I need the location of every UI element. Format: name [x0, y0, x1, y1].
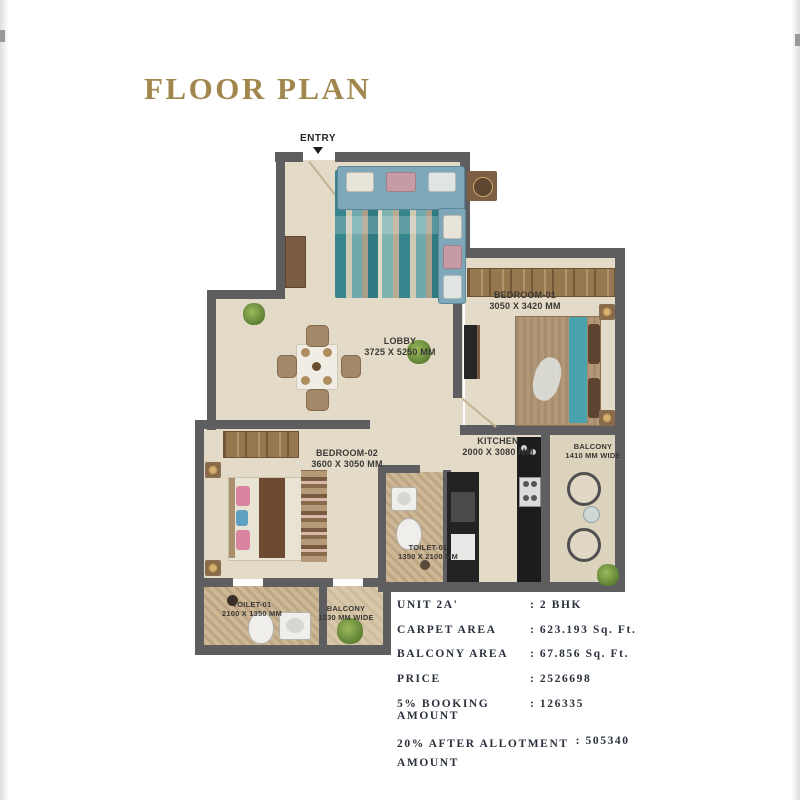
- side-table-top: [473, 177, 493, 197]
- detail-row: CARPET AREA : 623.193 Sq. Ft.: [397, 624, 652, 637]
- dining-table: [296, 344, 338, 390]
- bed-pillow: [236, 530, 250, 550]
- stove: [519, 477, 541, 507]
- console-table: [285, 236, 306, 288]
- balcony-table: [583, 506, 600, 523]
- detail-row: BALCONY AREA : 67.856 Sq. Ft.: [397, 648, 652, 661]
- room-name: LOBBY: [384, 336, 417, 346]
- place-setting: [301, 376, 310, 385]
- sofa-pillow: [346, 172, 374, 192]
- plant-icon: [243, 303, 265, 325]
- detail-value: : 623.193 Sq. Ft.: [530, 624, 652, 637]
- room-label-bedroom1: BEDROOM-01 3050 X 3420 MM: [489, 290, 560, 313]
- wall-segment: [276, 152, 285, 299]
- detail-value: : 67.856 Sq. Ft.: [530, 648, 652, 661]
- room-label-balcony-right: BALCONY 1410 MM WIDE: [565, 442, 620, 461]
- burner: [523, 495, 529, 501]
- burner: [531, 495, 537, 501]
- sofa-pillow: [386, 172, 416, 192]
- bed: [228, 477, 310, 561]
- room-label-lobby: LOBBY 3725 X 5250 MM: [364, 336, 435, 359]
- wall-segment: [195, 420, 370, 429]
- detail-value: : 505340: [576, 735, 652, 748]
- detail-label: CARPET AREA: [397, 624, 530, 637]
- detail-label: 5% BOOKING AMOUNT: [397, 698, 530, 723]
- bedside-rug: [301, 470, 327, 562]
- place-setting: [323, 348, 332, 357]
- room-dim: 3725 X 5250 MM: [364, 347, 435, 357]
- wall-segment: [460, 425, 625, 435]
- kitchen-counter: [517, 437, 541, 582]
- bed-runner: [259, 478, 285, 558]
- room-name: BALCONY: [574, 442, 612, 451]
- room-dim: 1230 MM WIDE: [318, 613, 373, 622]
- bed-throw: [529, 354, 566, 403]
- sofa: [438, 208, 466, 304]
- scan-mark: [795, 34, 800, 46]
- dining-chair: [277, 355, 297, 378]
- bed-pillow: [236, 486, 250, 506]
- wall-segment: [195, 645, 391, 655]
- entry-label: ENTRY: [300, 134, 336, 144]
- detail-row: UNIT 2A' : 2 BHK: [397, 599, 652, 612]
- room-dim: 3600 X 3050 MM: [311, 459, 382, 469]
- plant-icon: [597, 564, 619, 586]
- room-name: TOILET-01: [233, 600, 272, 609]
- bed: [515, 316, 601, 426]
- wall-segment: [541, 427, 550, 592]
- balcony-chair: [567, 528, 601, 562]
- bed-runner: [569, 317, 587, 423]
- kitchen-appliance-column: [447, 472, 479, 582]
- room-label-bedroom2: BEDROOM-02 3600 X 3050 MM: [311, 448, 382, 471]
- wall-segment: [207, 290, 279, 299]
- room-dim: 2100 X 1350 MM: [222, 609, 282, 618]
- dining-chair: [341, 355, 361, 378]
- room-name: BEDROOM-02: [316, 448, 378, 458]
- detail-label: UNIT 2A': [397, 599, 530, 612]
- floor-plan: ENTRY: [195, 140, 640, 660]
- dining-chair: [306, 389, 329, 411]
- page-edge-shadow-right: [791, 0, 800, 800]
- room-name: BEDROOM-01: [494, 290, 556, 300]
- room-label-kitchen: KITCHEN 2000 X 3080 MM: [462, 436, 533, 459]
- dining-chair: [306, 325, 329, 347]
- wall-segment: [383, 587, 391, 655]
- room-dim: 1350 X 2100 MM: [398, 552, 458, 561]
- sofa-pillow: [443, 245, 462, 269]
- wall-segment: [378, 582, 553, 592]
- appliance: [451, 492, 475, 522]
- detail-value: : 2 BHK: [530, 599, 652, 612]
- wall-segment: [615, 248, 625, 590]
- wall-segment: [460, 248, 625, 258]
- bed-pillow: [236, 510, 248, 526]
- unit-details-table: UNIT 2A' : 2 BHK CARPET AREA : 623.193 S…: [397, 599, 652, 786]
- sink-basin: [397, 492, 411, 505]
- room-label-toilet-bottom: TOILET-01 2100 X 1350 MM: [222, 600, 282, 619]
- centerpiece: [312, 362, 321, 371]
- wall-segment: [378, 465, 420, 473]
- nightstand-lamp: [599, 304, 615, 320]
- burner: [523, 481, 529, 487]
- sofa: [337, 166, 465, 210]
- room-dim: 3050 X 3420 MM: [489, 301, 560, 311]
- room-label-balcony-bottom: BALCONY 1230 MM WIDE: [318, 604, 373, 623]
- wall-segment: [195, 420, 204, 655]
- detail-row: 5% BOOKING AMOUNT : 126335: [397, 698, 652, 723]
- room-name: BALCONY: [327, 604, 365, 613]
- sofa-pillow: [428, 172, 456, 192]
- side-table: [467, 171, 497, 201]
- bed-headboard: [229, 478, 235, 558]
- wardrobe: [223, 431, 299, 458]
- wall-segment: [207, 290, 216, 430]
- room-name: KITCHEN: [477, 436, 518, 446]
- detail-value: : 2526698: [530, 673, 652, 686]
- wall-segment: [195, 578, 233, 587]
- room-label-toilet-mid: TOILET-01 1350 X 2100 MM: [398, 543, 458, 562]
- balcony-chair: [567, 472, 601, 506]
- sink: [391, 487, 417, 511]
- page-edge-shadow-left: [0, 0, 9, 800]
- sink-basin: [286, 618, 304, 633]
- sofa-pillow: [443, 275, 462, 299]
- nightstand-lamp: [205, 462, 221, 478]
- scan-mark: [0, 30, 5, 42]
- sink: [279, 612, 311, 640]
- page-title: FLOOR PLAN: [144, 72, 371, 106]
- floor-plan-page: FLOOR PLAN: [0, 0, 800, 800]
- wall-segment: [378, 470, 386, 585]
- burner: [531, 481, 537, 487]
- room-dim: 1410 MM WIDE: [565, 451, 620, 460]
- tv-unit: [464, 325, 480, 379]
- wall-segment: [263, 578, 333, 587]
- sofa-pillow: [443, 215, 462, 239]
- detail-row: PRICE : 2526698: [397, 673, 652, 686]
- place-setting: [323, 376, 332, 385]
- room-dim: 2000 X 3080 MM: [462, 447, 533, 457]
- nightstand-lamp: [599, 410, 615, 426]
- bed-pillow: [588, 324, 600, 364]
- detail-label: 20% AFTER ALLOTMENT AMOUNT: [397, 735, 569, 774]
- detail-label: PRICE: [397, 673, 530, 686]
- entry-arrow-icon: [313, 147, 323, 154]
- nightstand-lamp: [205, 560, 221, 576]
- detail-label: BALCONY AREA: [397, 648, 530, 661]
- wall-segment: [335, 152, 470, 162]
- detail-row: 20% AFTER ALLOTMENT AMOUNT : 505340: [397, 735, 652, 774]
- place-setting: [301, 348, 310, 357]
- detail-value: : 126335: [530, 698, 652, 711]
- room-name: TOILET-01: [409, 543, 448, 552]
